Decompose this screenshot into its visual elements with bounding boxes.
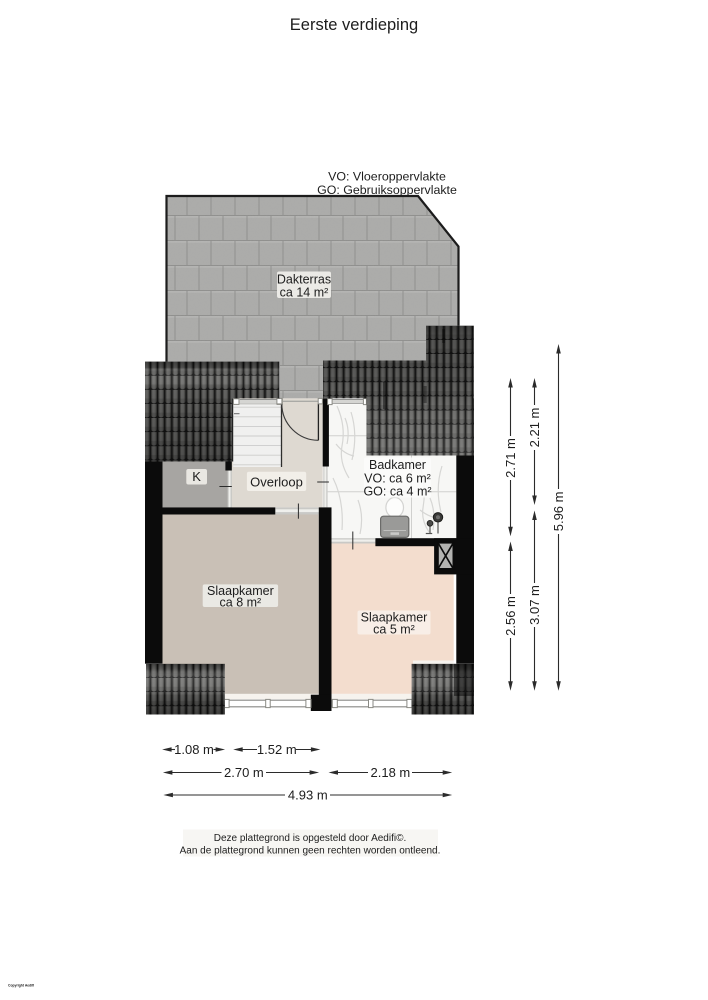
svg-text:GO: ca 4 m²: GO: ca 4 m² xyxy=(363,485,431,499)
svg-text:VO: ca 6 m²: VO: ca 6 m² xyxy=(364,472,431,486)
svg-text:Aan de plattegrond kunnen geen: Aan de plattegrond kunnen geen rechten w… xyxy=(180,846,441,857)
svg-text:VO: Vloeroppervlakte: VO: Vloeroppervlakte xyxy=(328,170,446,184)
svg-text:2.21 m: 2.21 m xyxy=(527,408,542,448)
svg-text:4.93 m: 4.93 m xyxy=(288,788,328,803)
svg-text:1.08 m: 1.08 m xyxy=(174,742,214,757)
svg-text:2.71 m: 2.71 m xyxy=(503,438,518,478)
svg-text:1.52 m: 1.52 m xyxy=(257,742,297,757)
svg-text:Badkamer: Badkamer xyxy=(369,458,426,472)
svg-text:ca 8 m²: ca 8 m² xyxy=(220,595,262,609)
svg-text:Deze plattegrond is opgesteld: Deze plattegrond is opgesteld door Aedif… xyxy=(214,833,407,844)
svg-text:2.18 m: 2.18 m xyxy=(371,765,411,780)
svg-text:Eerste verdieping: Eerste verdieping xyxy=(290,16,418,34)
svg-text:3.07 m: 3.07 m xyxy=(527,585,542,625)
svg-text:ca 14 m²: ca 14 m² xyxy=(280,286,329,300)
svg-text:5.96 m: 5.96 m xyxy=(551,492,566,532)
svg-text:Dakterras: Dakterras xyxy=(277,273,331,287)
svg-text:K: K xyxy=(192,469,201,484)
svg-text:Copyright Aedifi: Copyright Aedifi xyxy=(8,984,34,988)
svg-text:Overloop: Overloop xyxy=(250,475,303,490)
svg-text:2.56 m: 2.56 m xyxy=(503,596,518,636)
svg-text:ca 5 m²: ca 5 m² xyxy=(373,622,415,636)
svg-text:2.70 m: 2.70 m xyxy=(224,765,264,780)
